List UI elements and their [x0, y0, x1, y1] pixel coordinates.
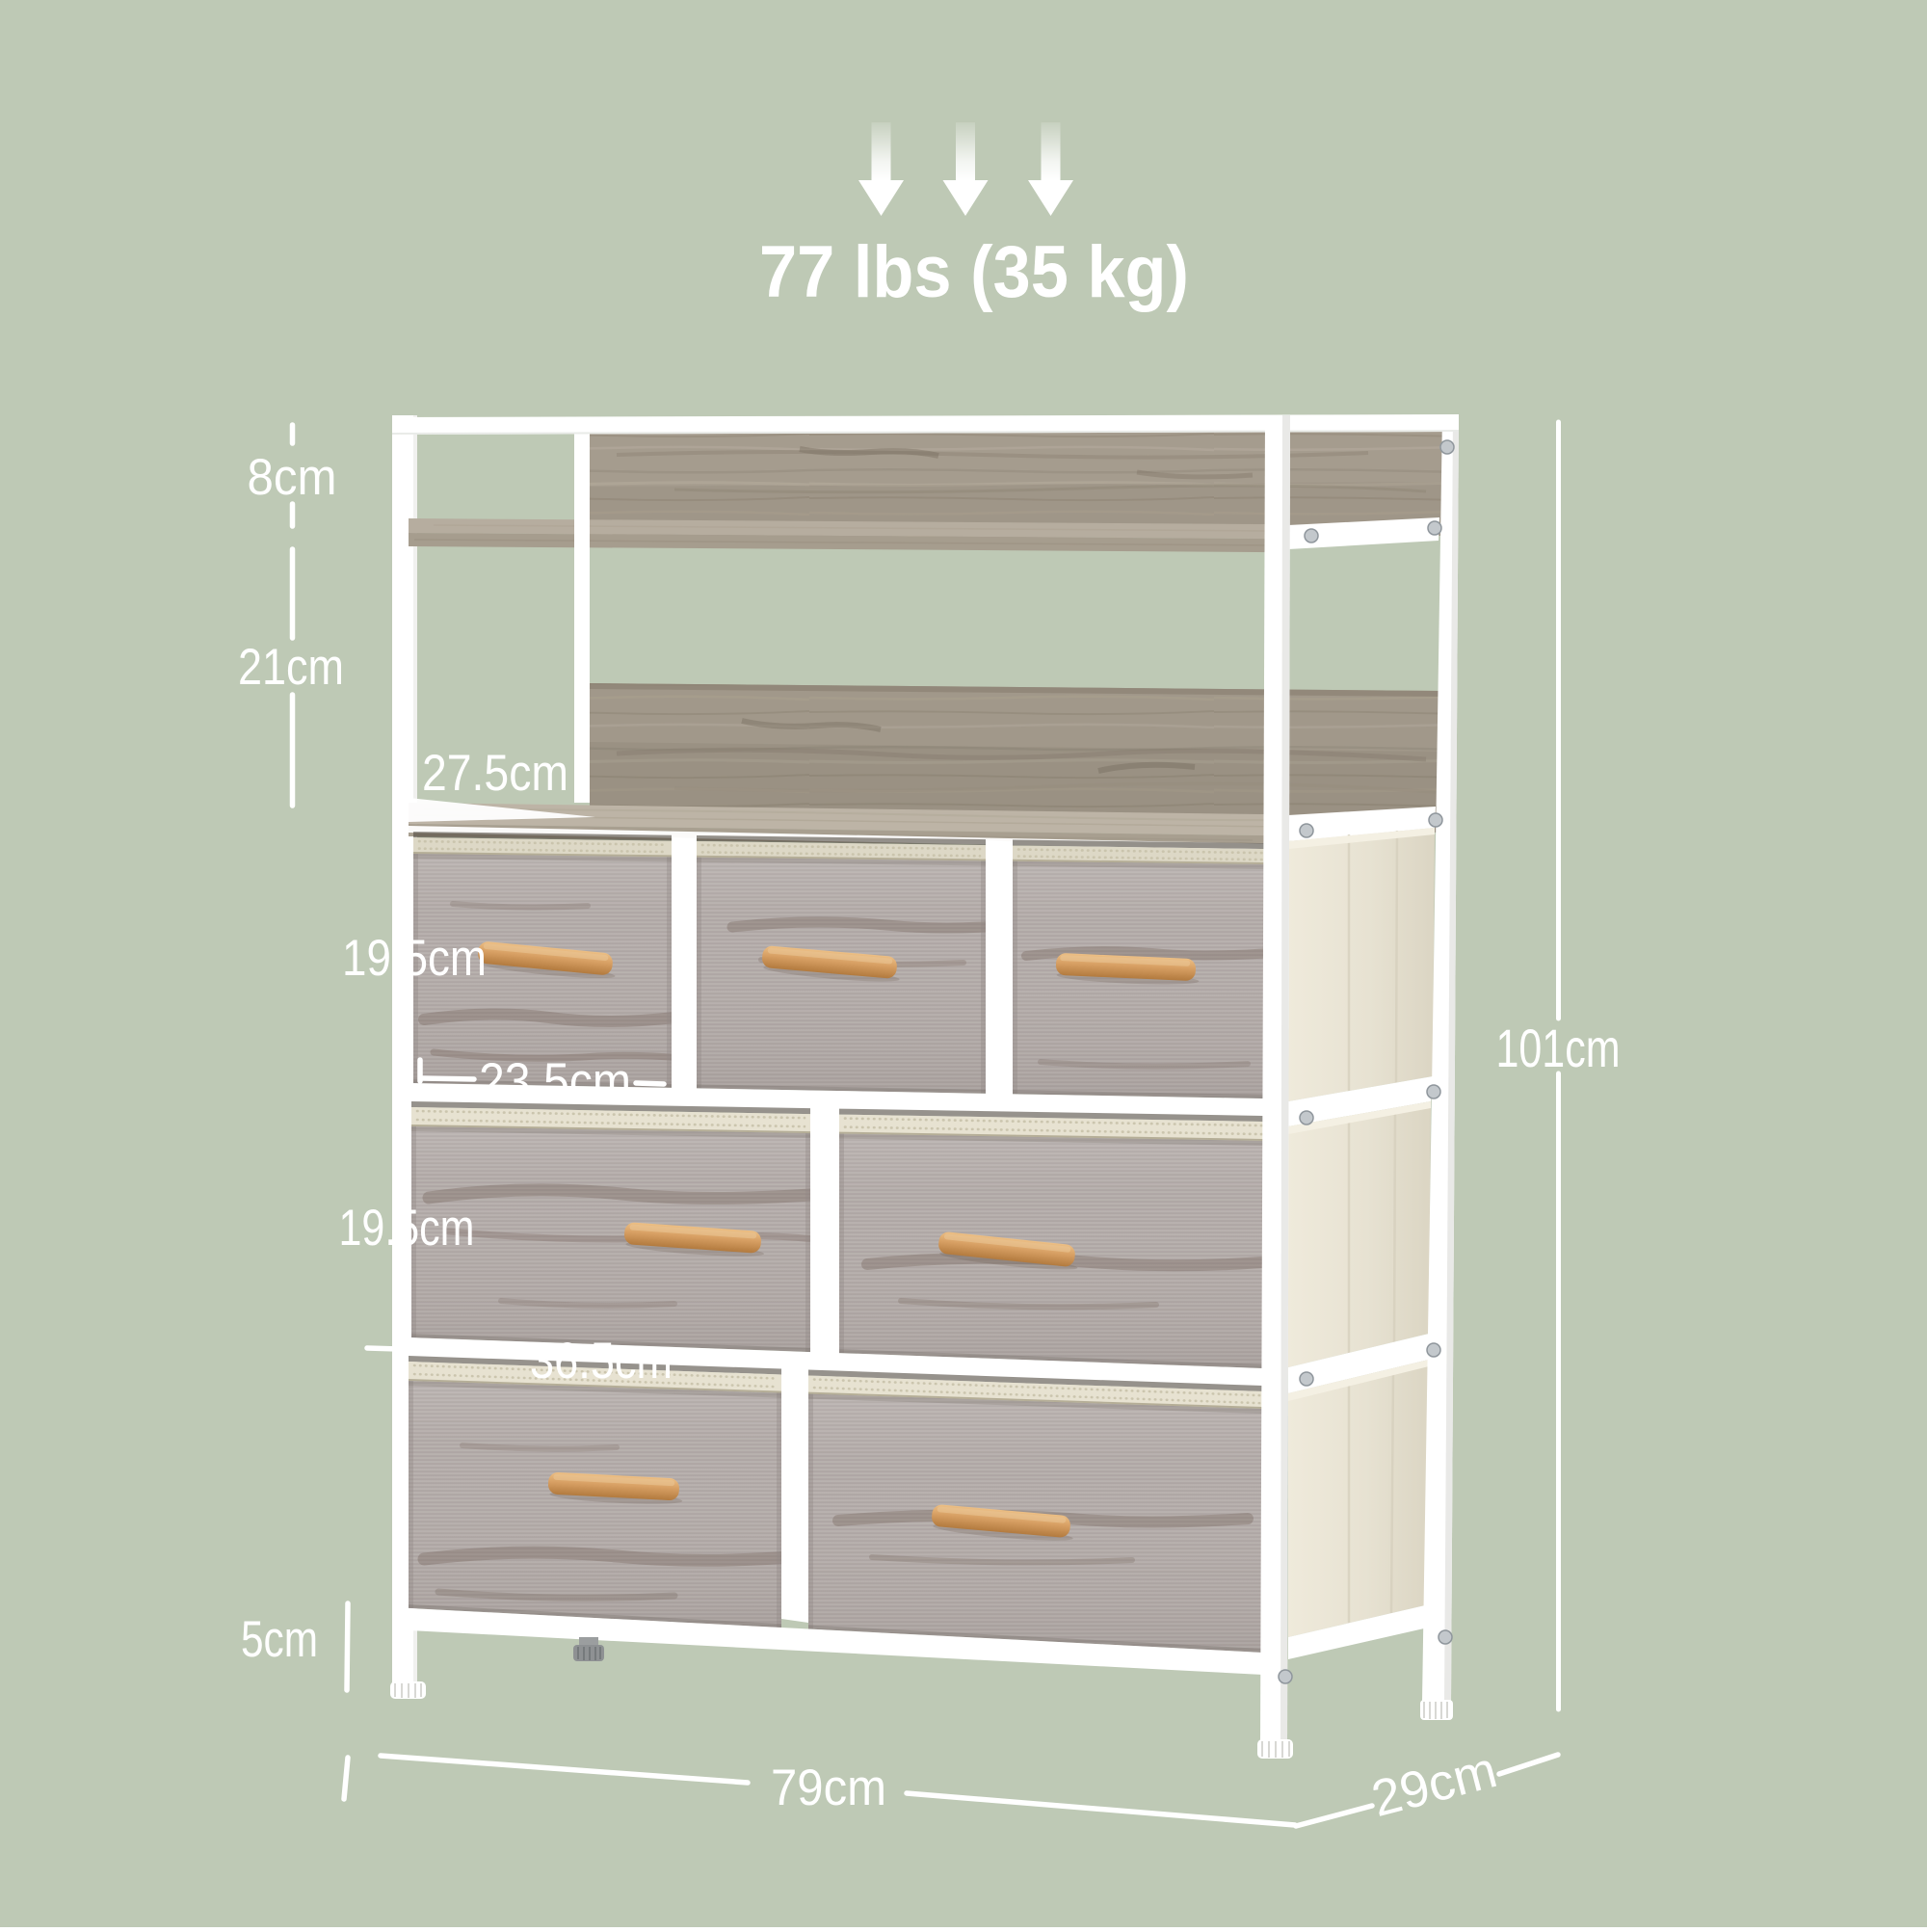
svg-text:19.5cm: 19.5cm — [339, 1200, 475, 1257]
svg-text:77 lbs (35 kg): 77 lbs (35 kg) — [759, 231, 1189, 313]
svg-text:8cm: 8cm — [248, 449, 337, 506]
svg-text:79cm: 79cm — [771, 1760, 886, 1816]
svg-text:23.5cm: 23.5cm — [479, 1053, 631, 1110]
svg-text:5cm: 5cm — [241, 1611, 318, 1668]
svg-text:101cm: 101cm — [1496, 1018, 1621, 1078]
svg-text:27.5cm: 27.5cm — [422, 745, 568, 802]
svg-text:36.5cm: 36.5cm — [530, 1333, 673, 1389]
svg-text:21cm: 21cm — [238, 639, 344, 696]
svg-text:19.5cm: 19.5cm — [342, 930, 487, 987]
